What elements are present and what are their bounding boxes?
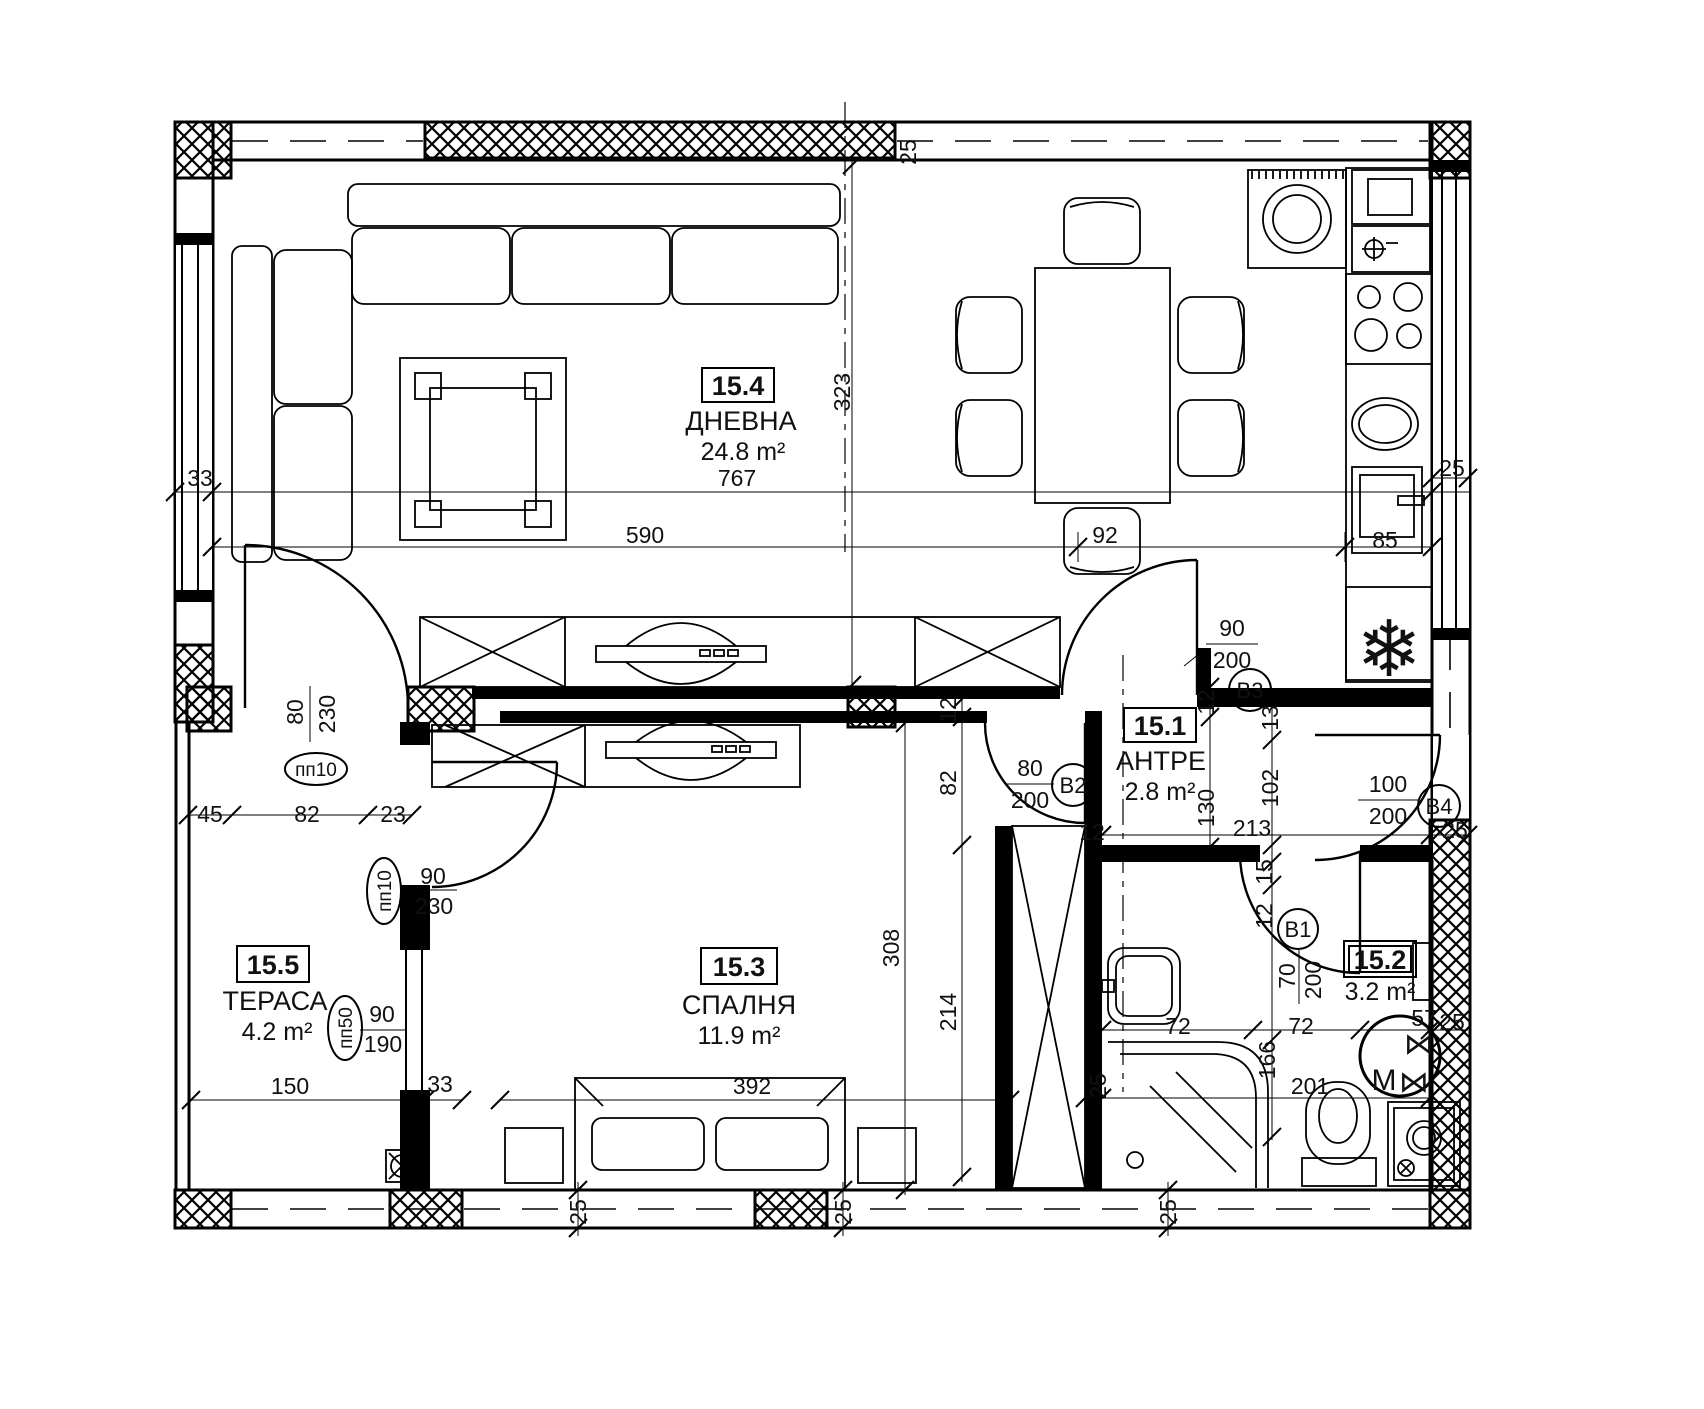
fridge-snowflake-icon: ❄ xyxy=(1356,605,1421,693)
window-1-width: 80 xyxy=(282,699,308,725)
nightstand xyxy=(505,1128,563,1183)
hatched-wall xyxy=(1430,122,1470,178)
dim-text: 25 xyxy=(1439,1009,1465,1035)
bed xyxy=(575,1078,845,1190)
pillow xyxy=(716,1118,828,1170)
window-3-width: 90 xyxy=(369,1001,395,1027)
dim-text: 15 xyxy=(1251,859,1277,885)
hatched-wall xyxy=(175,1190,231,1228)
window-tag-pp50-label: пп50 xyxy=(336,1007,357,1049)
hatched-wall xyxy=(187,687,231,731)
dim-text: 590 xyxy=(626,522,664,548)
coffee-table xyxy=(400,358,566,540)
window-left-cap-top xyxy=(175,233,213,245)
dim-text: 12 xyxy=(935,697,961,723)
window-kitchen-gap xyxy=(1433,172,1469,628)
wall-living-south xyxy=(472,687,1060,699)
door-b4-height: 200 xyxy=(1369,803,1407,829)
wall-terrace-east-c xyxy=(400,1090,430,1190)
room-area-15-2: 3.2 m² xyxy=(1345,978,1416,1006)
window-3-height: 190 xyxy=(364,1031,402,1057)
dining-chair xyxy=(1064,198,1140,264)
boiler-coil-icon: ⋈ xyxy=(1404,1028,1434,1061)
door-b2-width: 80 xyxy=(1017,755,1043,781)
burner-icon xyxy=(1355,319,1387,351)
dining-chair xyxy=(956,297,1022,373)
wall-bedroom-north xyxy=(500,711,987,723)
room-number-15-3: 15.3 xyxy=(713,952,766,982)
boiler-coil-icon: ⋈ xyxy=(1399,1066,1429,1099)
window-tag-pp10-b-label: пп10 xyxy=(375,870,396,912)
room-area-15-1: 2.8 m² xyxy=(1125,778,1196,806)
burner-icon xyxy=(1397,324,1421,348)
window-terrace-cap xyxy=(400,938,430,950)
dining-chair xyxy=(1178,297,1244,373)
door-b3-width: 90 xyxy=(1219,615,1245,641)
burner-icon xyxy=(1358,286,1380,308)
boiler-motor-icon: M xyxy=(1372,1064,1397,1097)
door-tag-b1-label: B1 xyxy=(1285,917,1312,942)
dim-text: 45 xyxy=(197,801,223,827)
dim-text: 150 xyxy=(271,1073,309,1099)
dim-text: 12 xyxy=(1079,819,1105,845)
dim-text: 767 xyxy=(718,465,756,491)
dim-text: 85 xyxy=(1372,527,1398,553)
room-number-15-4: 15.4 xyxy=(712,371,765,401)
burner-icon xyxy=(1394,283,1422,311)
door-tag-b2-label: B2 xyxy=(1060,773,1087,798)
dim-text: 72 xyxy=(1165,1013,1191,1039)
room-number-15-5: 15.5 xyxy=(247,950,300,980)
toilet-tank xyxy=(1302,1158,1376,1186)
dim-text: 308 xyxy=(878,929,904,967)
door-b3-swing xyxy=(1062,560,1197,695)
dim-text: 92 xyxy=(1092,522,1118,548)
dim-text: 214 xyxy=(935,993,961,1032)
dim-text: 33 xyxy=(187,465,213,491)
shower xyxy=(1108,1042,1268,1188)
terrace-bedroom-door-swing xyxy=(432,762,557,887)
dim-text: 25 xyxy=(895,139,921,165)
tv-bench-living xyxy=(420,617,1060,687)
floor-plan-canvas: ❄ ⋈ M ⋈ xyxy=(0,0,1704,1409)
door-b2-height: 200 xyxy=(1011,787,1049,813)
window-2-width: 90 xyxy=(420,863,446,889)
hatched-wall xyxy=(848,687,895,727)
dim-text: 130 xyxy=(1193,789,1219,827)
nightstand xyxy=(858,1128,916,1183)
dining-table xyxy=(1035,268,1170,503)
dim-text: 25 xyxy=(1085,1073,1111,1099)
dim-text: 57 xyxy=(1411,1005,1437,1031)
window-left-cap-bottom xyxy=(175,590,213,602)
dining-chair xyxy=(1178,400,1244,476)
window-2-height: 230 xyxy=(415,893,453,919)
terrace-parapet xyxy=(176,722,189,1190)
dim-text: 82 xyxy=(935,770,961,796)
dimension-texts: 767 590 92 85 323 25 33 25 45 82 23 12 8… xyxy=(187,139,1468,1225)
hatched-wall xyxy=(425,122,895,158)
dim-text: 33 xyxy=(427,1071,453,1097)
terrace-drain xyxy=(386,1150,418,1182)
room-area-15-3: 11.9 m² xyxy=(698,1022,781,1050)
dim-text: 213 xyxy=(1233,815,1271,841)
dim-text: 82 xyxy=(294,801,320,827)
door-b1-height: 200 xyxy=(1300,961,1326,999)
floor-plan: ❄ ⋈ M ⋈ xyxy=(0,0,1704,1409)
room-area-15-4: 24.8 m² xyxy=(701,438,786,466)
hatched-wall xyxy=(175,122,231,178)
door-b1-width: 70 xyxy=(1274,963,1300,989)
tv-bench-bedroom xyxy=(432,725,800,787)
room-name-15-3: СПАЛНЯ xyxy=(682,990,796,1020)
dim-text: 392 xyxy=(733,1073,771,1099)
dim-text: 323 xyxy=(829,373,855,411)
dim-text: 102 xyxy=(1257,769,1283,807)
room-name-15-5: ТЕРАСА xyxy=(222,986,327,1016)
dim-text: 25 xyxy=(830,1199,856,1225)
window-tag-pp10-a-label: пп10 xyxy=(295,760,337,781)
dim-text: 166 xyxy=(1254,1041,1280,1079)
hatched-wall xyxy=(755,1190,827,1228)
door-b4-swing xyxy=(1315,735,1440,860)
wall-windows xyxy=(175,160,1470,1090)
dim-text: 23 xyxy=(380,801,406,827)
dim-text: 25 xyxy=(565,1199,591,1225)
door-b4-width: 100 xyxy=(1369,771,1407,797)
window-terrace-glass xyxy=(406,950,422,1090)
window-kitchen-cap-bottom xyxy=(1432,628,1470,640)
room-number-15-1: 15.1 xyxy=(1134,711,1187,741)
room-area-15-5: 4.2 m² xyxy=(242,1018,313,1046)
dim-text: 72 xyxy=(1288,1013,1314,1039)
tv-living xyxy=(596,646,766,662)
room-name-15-1: АНТРЕ xyxy=(1116,746,1206,776)
pillow xyxy=(592,1118,704,1170)
dining-chair xyxy=(956,400,1022,476)
window-1-height: 230 xyxy=(314,695,340,733)
hatched-wall xyxy=(390,1190,462,1228)
dim-text: 25 xyxy=(1439,455,1465,481)
dim-text: 25 xyxy=(1155,1199,1181,1225)
door-tag-b3-label: B3 xyxy=(1237,678,1264,703)
terrace-living-door-swing xyxy=(245,545,408,708)
door-tag-b4-label: B4 xyxy=(1426,794,1453,819)
dim-text: 12 xyxy=(1251,903,1277,929)
room-name-15-4: ДНЕВНА xyxy=(685,406,796,436)
dim-text: 201 xyxy=(1291,1073,1329,1099)
wall-bedroom-east xyxy=(995,826,1012,1190)
wall-bathroom-north-a xyxy=(1102,845,1260,862)
room-number-15-2: 15.2 xyxy=(1354,945,1407,975)
dining-set xyxy=(956,198,1244,574)
